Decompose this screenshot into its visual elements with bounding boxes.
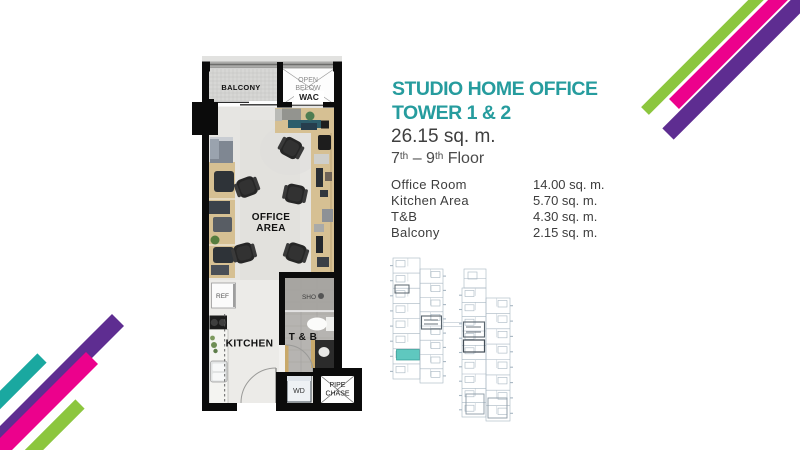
svg-text:T & B: T & B [289,332,318,343]
svg-text:REF: REF [216,293,229,300]
svg-text:KITCHEN: KITCHEN [226,339,274,350]
svg-text:OFFICE: OFFICE [252,212,290,223]
svg-text:PIPE: PIPE [330,382,346,389]
svg-text:CHASE: CHASE [325,391,349,398]
svg-text:WD: WD [293,388,305,395]
svg-text:BALCONY: BALCONY [221,83,260,92]
svg-text:SHO: SHO [302,294,316,301]
svg-text:BELOW: BELOW [295,85,321,92]
svg-text:WAC: WAC [299,92,319,102]
svg-text:AREA: AREA [256,223,286,234]
svg-text:OPEN: OPEN [298,77,318,84]
